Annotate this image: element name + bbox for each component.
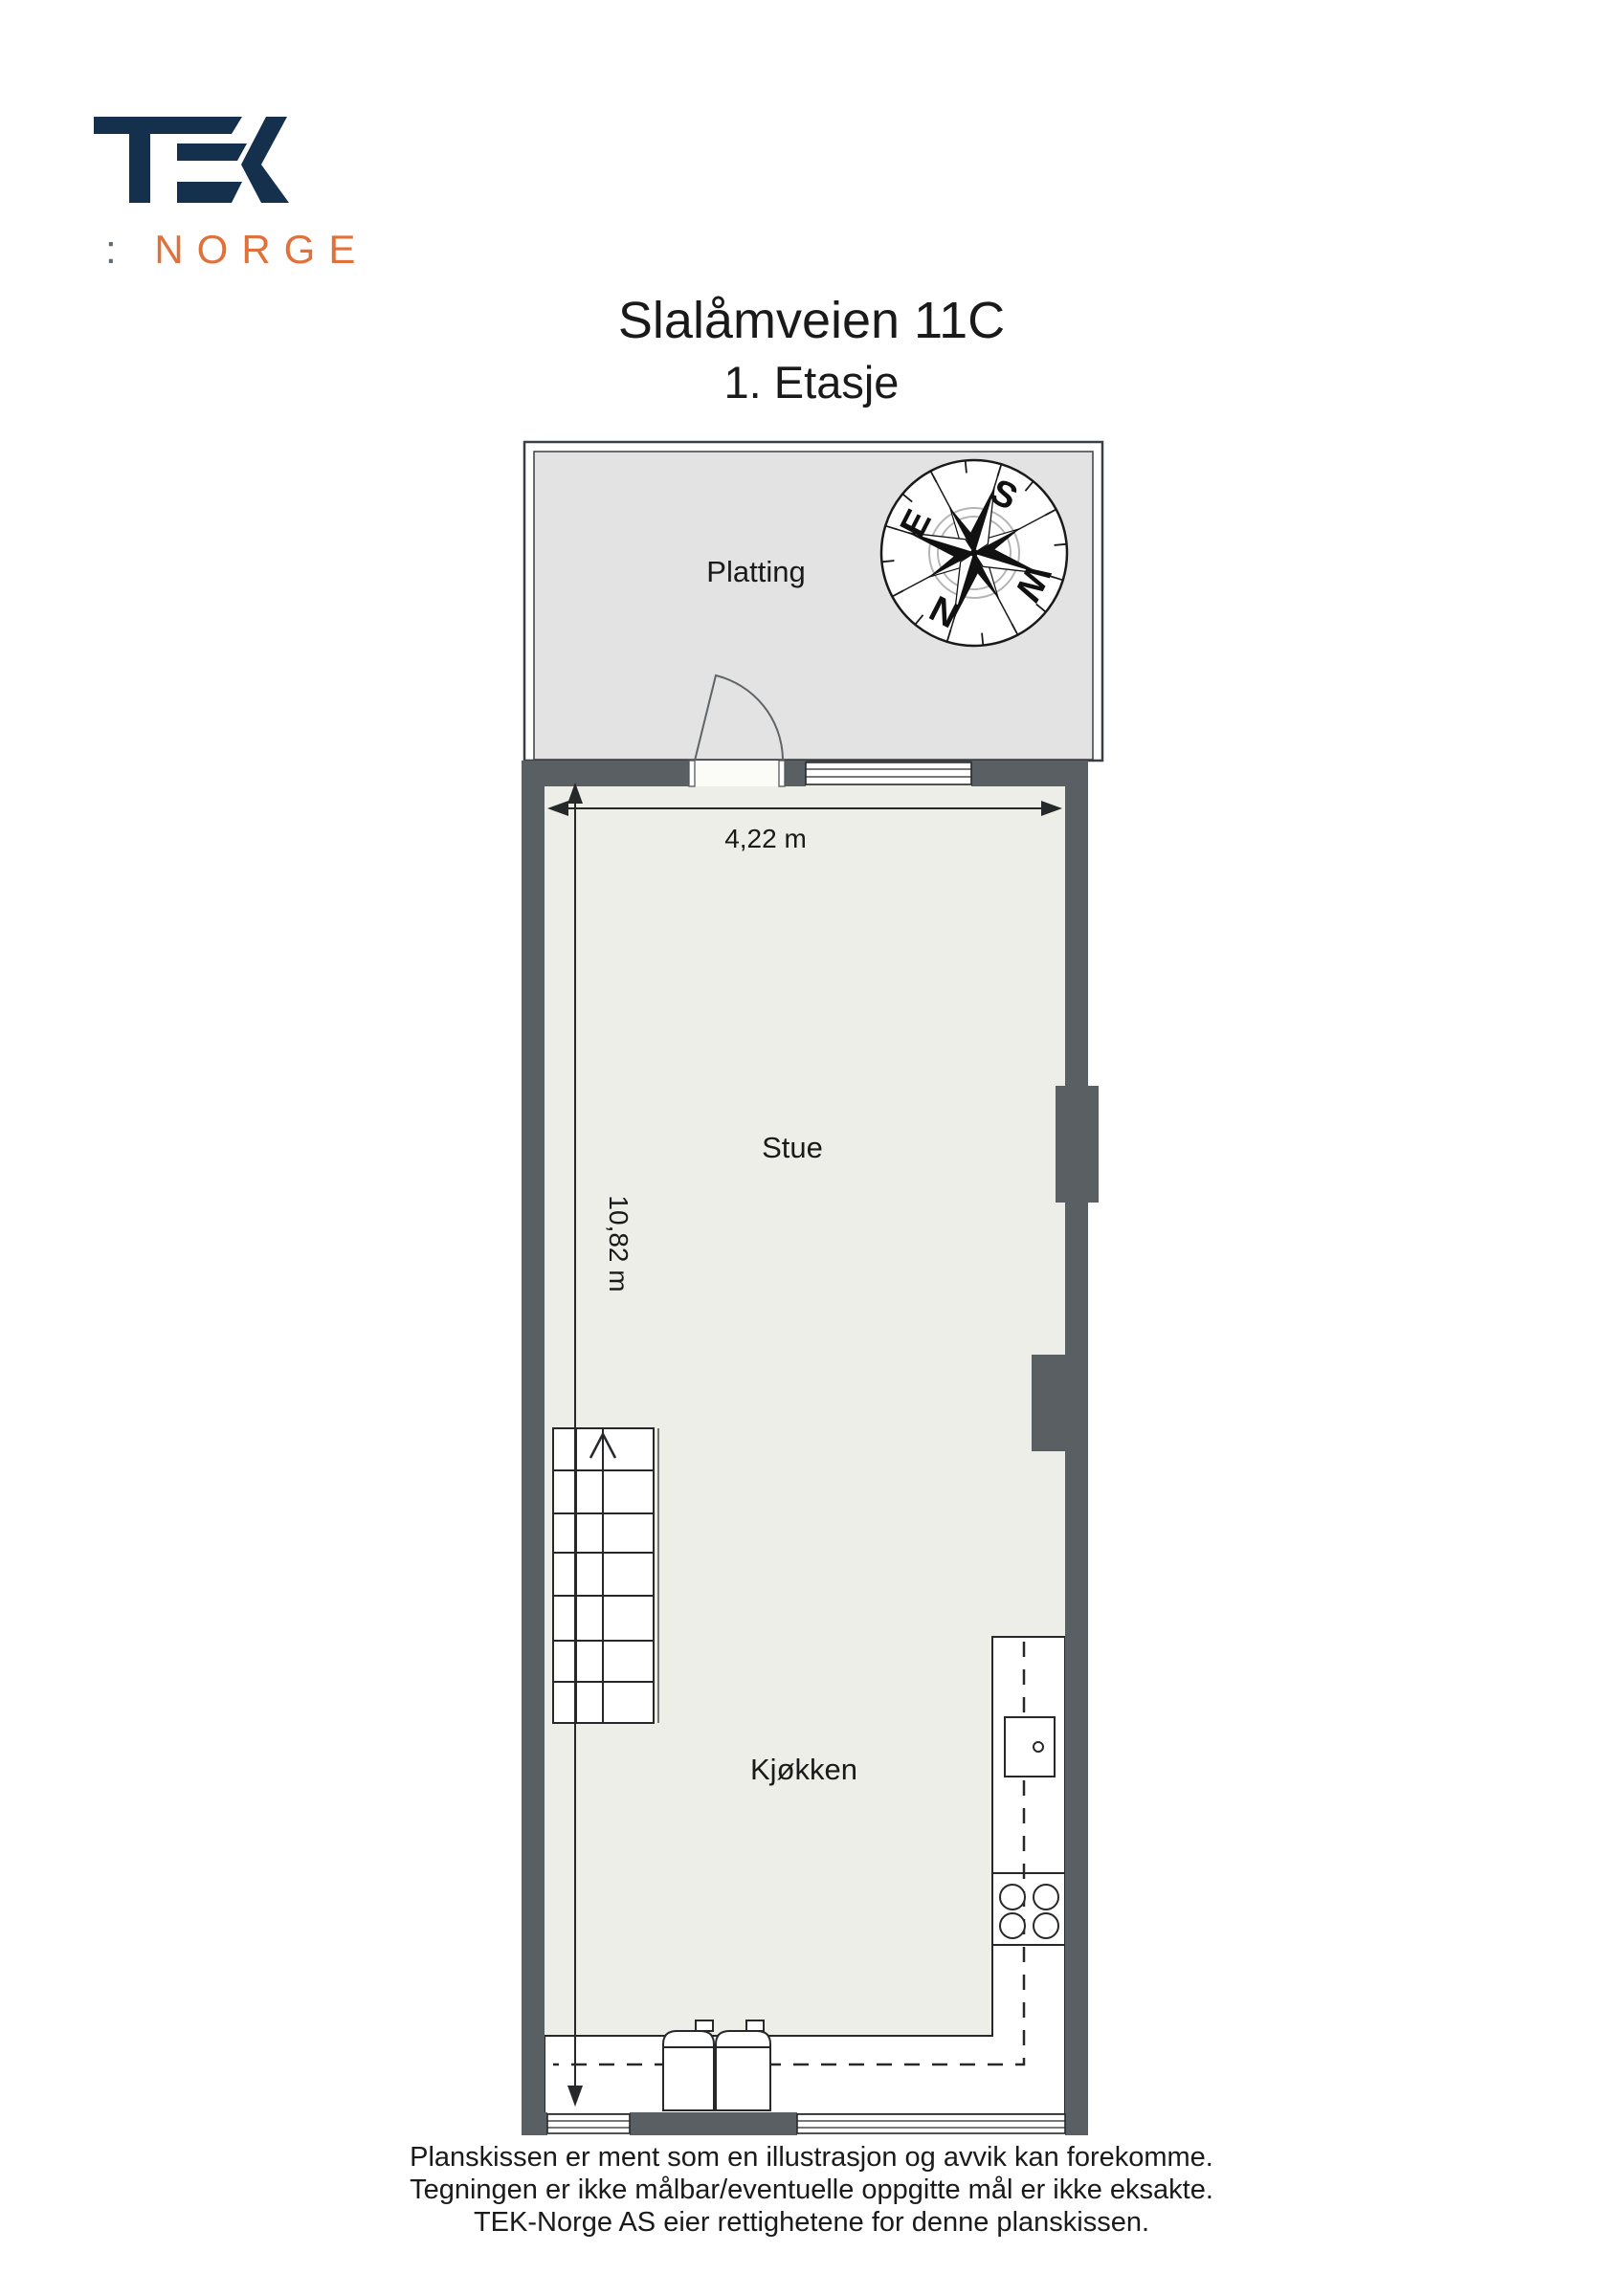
entry-door-opening: [689, 761, 785, 786]
door-jamb: [689, 761, 695, 786]
page: : NORGE Slalåmveien 11C 1. Etasje: [0, 0, 1623, 2296]
room-label-kjokken: Kjøkken: [750, 1753, 857, 1786]
disclaimer-line-1: Planskissen er ment som en illustrasjon …: [0, 2141, 1623, 2174]
window-bottom-right: [797, 2114, 1065, 2133]
window-bottom-left: [547, 2114, 630, 2133]
appliance-knob: [696, 2020, 713, 2031]
burner: [1034, 1885, 1058, 1910]
top-wall-mid: [785, 761, 806, 786]
bottom-wall-mid: [630, 2112, 797, 2135]
burner: [1000, 1885, 1025, 1910]
door-jamb: [779, 761, 785, 786]
floorplan-canvas: 4,22 m 10,82 m: [0, 0, 1623, 2296]
bottom-wall-right: [1065, 2112, 1088, 2135]
room-label-stue: Stue: [762, 1131, 823, 1164]
appliance-right: [716, 2031, 770, 2110]
kitchen-sink: [1005, 1717, 1055, 1777]
window-top: [806, 762, 971, 784]
burner: [1034, 1913, 1058, 1938]
sink-drain: [1034, 1742, 1043, 1752]
appliance-knob: [746, 2020, 764, 2031]
room-label-platting: Platting: [706, 555, 805, 588]
right-wall-pier: [1056, 1086, 1099, 1203]
dimension-width-label: 4,22 m: [724, 824, 807, 853]
burner: [1000, 1913, 1025, 1938]
left-wall: [522, 761, 545, 2135]
appliance-left: [663, 2031, 714, 2110]
staircase: [553, 1428, 658, 1723]
dimension-height-label: 10,82 m: [604, 1195, 634, 1291]
bottom-wall-left: [522, 2112, 547, 2135]
disclaimer-line-2: Tegningen er ikke målbar/eventuelle oppg…: [0, 2174, 1623, 2206]
right-wall-chimney: [1032, 1355, 1088, 1451]
disclaimer-line-3: TEK-Norge AS eier rettighetene for denne…: [0, 2206, 1623, 2239]
top-wall-left: [522, 761, 689, 786]
top-wall-right: [971, 761, 1088, 786]
disclaimer: Planskissen er ment som en illustrasjon …: [0, 2141, 1623, 2239]
